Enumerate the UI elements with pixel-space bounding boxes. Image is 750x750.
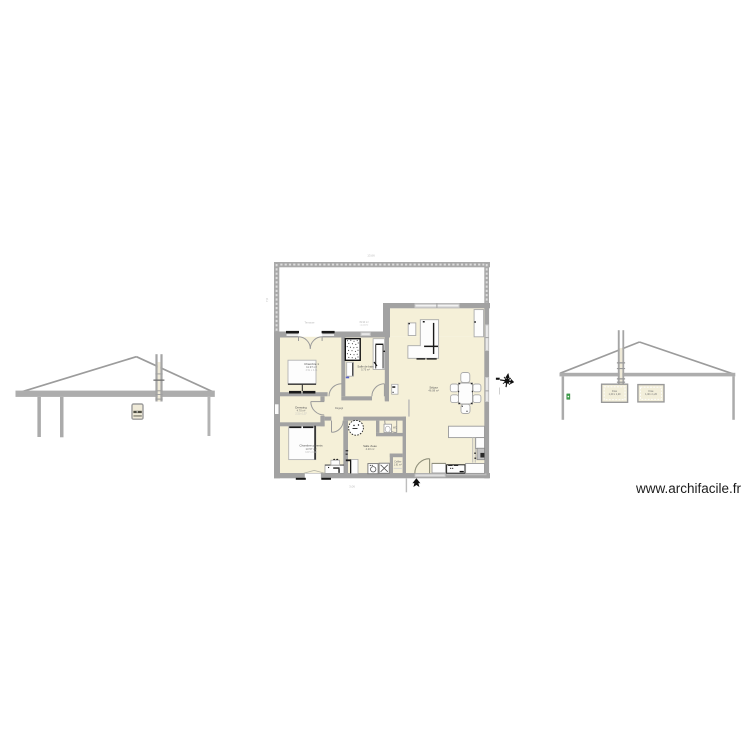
svg-text:2.31 x 1.57: 2.31 x 1.57 xyxy=(295,413,307,415)
svg-text:13,66: 13,66 xyxy=(367,254,375,258)
svg-text:7,0: 7,0 xyxy=(265,298,269,303)
svg-text:Fixe: Fixe xyxy=(612,389,617,393)
svg-text:Fixe: Fixe xyxy=(649,389,654,393)
svg-text:Dégagt: Dégagt xyxy=(335,407,343,410)
svg-text:www.archifacile.fr: www.archifacile.fr xyxy=(635,481,742,496)
svg-text:1.81 m²: 1.81 m² xyxy=(394,464,402,467)
svg-text:3,06: 3,06 xyxy=(349,485,355,489)
svg-text:4.20 m²: 4.20 m² xyxy=(366,447,375,451)
svg-text:3.97 x 3.42: 3.97 x 3.42 xyxy=(305,451,317,454)
svg-text:5.75 m²: 5.75 m² xyxy=(361,368,370,372)
svg-text:couverte: couverte xyxy=(360,324,369,327)
svg-text:1,40 x 1,20: 1,40 x 1,20 xyxy=(645,393,657,396)
svg-text:WC: WC xyxy=(393,426,397,429)
svg-text:Terrasse: Terrasse xyxy=(305,320,316,324)
svg-text:1,40 x 1,20: 1,40 x 1,20 xyxy=(609,393,621,396)
svg-text:3.51 x 3.41: 3.51 x 3.41 xyxy=(306,369,318,372)
svg-text:4.70 m²: 4.70 m² xyxy=(297,409,306,413)
svg-text:46.08 m²: 46.08 m² xyxy=(428,389,439,393)
svg-text:39.90 m²: 39.90 m² xyxy=(359,321,369,324)
